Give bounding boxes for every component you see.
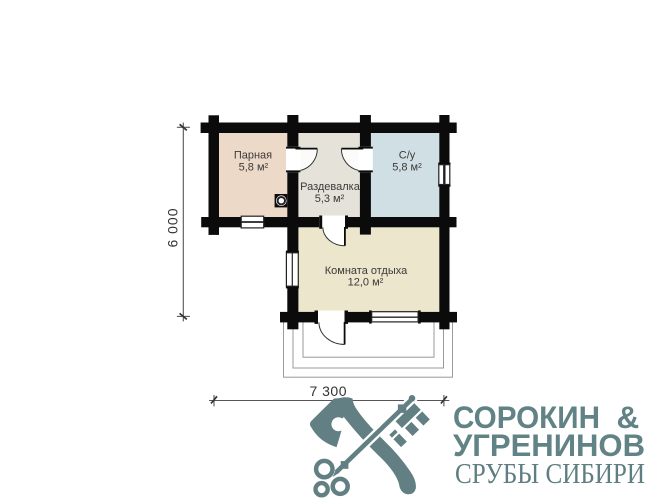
- svg-text:5,8 м²: 5,8 м²: [392, 162, 422, 174]
- svg-text:С/у: С/у: [399, 149, 416, 161]
- svg-text:Раздевалка: Раздевалка: [300, 181, 361, 193]
- svg-text:12,0 м²: 12,0 м²: [348, 277, 384, 289]
- svg-text:Парная: Парная: [234, 149, 272, 161]
- svg-text:5,8 м²: 5,8 м²: [239, 162, 269, 174]
- svg-text:УГРЕНИНОВ: УГРЕНИНОВ: [453, 427, 645, 463]
- svg-text:Комната отдыха: Комната отдыха: [325, 265, 408, 277]
- svg-text:7 300: 7 300: [310, 383, 347, 399]
- svg-text:СРУБЫ СИБИРИ: СРУБЫ СИБИРИ: [455, 459, 645, 490]
- svg-text:6 000: 6 000: [165, 208, 181, 247]
- svg-text:5,3 м²: 5,3 м²: [315, 193, 345, 205]
